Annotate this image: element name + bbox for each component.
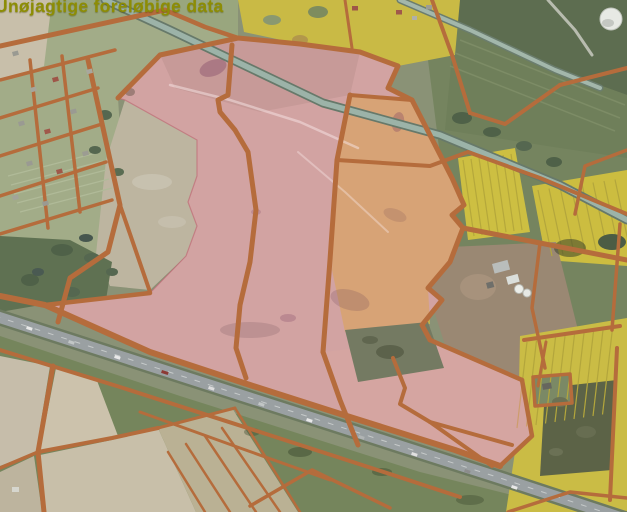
canal-trees bbox=[546, 157, 562, 167]
pond-trees bbox=[598, 234, 626, 250]
house bbox=[396, 10, 402, 15]
wet-blob bbox=[280, 314, 296, 322]
pond bbox=[79, 234, 93, 242]
tree-blob bbox=[89, 146, 101, 154]
green-patch bbox=[308, 6, 328, 18]
map-canvas[interactable] bbox=[0, 0, 627, 512]
scrub-texture bbox=[220, 322, 280, 338]
notch-highlight bbox=[132, 174, 172, 190]
silo-shadow bbox=[602, 19, 614, 27]
notch-highlight bbox=[158, 216, 186, 228]
canal-trees bbox=[516, 141, 532, 151]
house bbox=[12, 487, 19, 492]
house bbox=[412, 16, 417, 20]
house bbox=[426, 5, 432, 10]
pond bbox=[32, 268, 44, 276]
house bbox=[352, 6, 358, 11]
scrub-blob bbox=[576, 426, 596, 438]
tree-blob bbox=[51, 244, 73, 256]
dark-parcel-blob bbox=[362, 336, 378, 344]
map-viewport[interactable]: Unøjagtige foreløbige data bbox=[0, 0, 627, 512]
tree-blob bbox=[106, 268, 118, 276]
scrub-blob bbox=[549, 448, 563, 456]
farm-silo bbox=[515, 285, 524, 294]
farm-silo bbox=[523, 289, 531, 297]
storage-silo bbox=[600, 8, 622, 30]
green-patch bbox=[263, 15, 281, 25]
canal-trees bbox=[483, 127, 501, 137]
dark-parcel-blob bbox=[376, 345, 404, 359]
